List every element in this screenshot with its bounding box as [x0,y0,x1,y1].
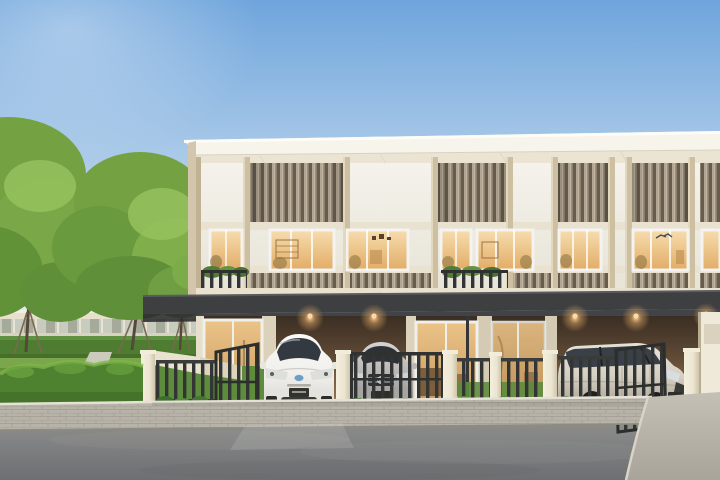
window [441,230,471,270]
architectural-render [0,0,720,480]
window [477,230,533,270]
window [270,230,334,270]
window [633,230,688,270]
brand-badge [294,374,304,381]
driveway-hint [230,423,354,450]
window [347,230,408,270]
upper-windows [210,230,720,270]
building-left-wall [188,141,196,300]
window [702,230,720,270]
fence-panel [558,356,616,402]
side-mirror [260,362,266,369]
gate-closed-center [350,352,444,406]
fence-panel [457,358,490,402]
window [210,230,242,270]
window [559,230,601,270]
fence-panel [500,358,543,402]
louvre-panels-upper [250,163,720,230]
